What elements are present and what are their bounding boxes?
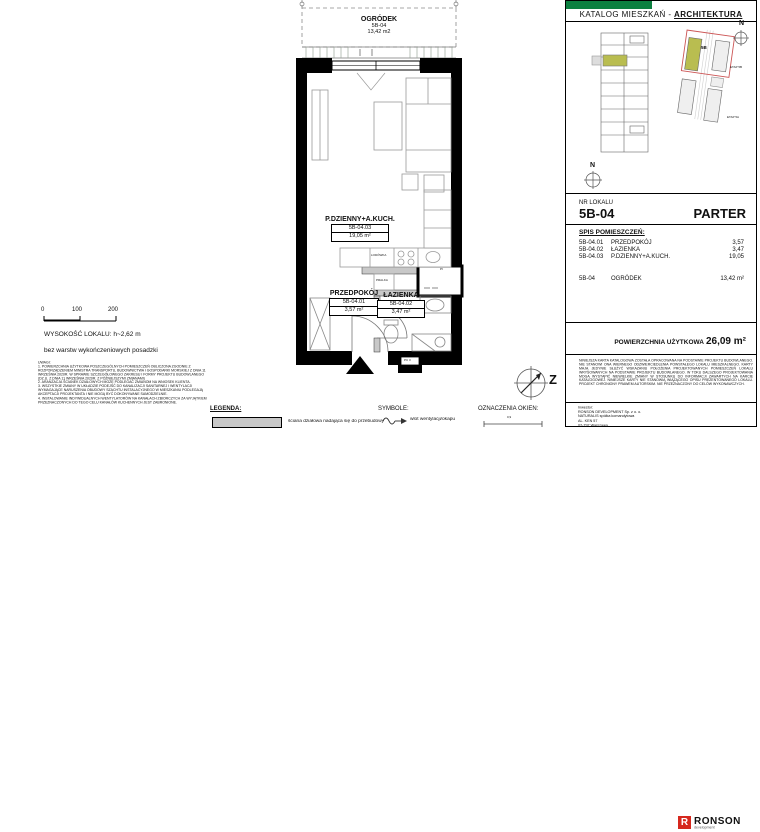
- shaft-label: PI: [440, 268, 443, 271]
- room-row-1: 5B-04.01 PRZEDPOKÓJ 3,57: [579, 240, 744, 246]
- garden-row-area: 13,42 m²: [720, 276, 744, 282]
- window-mark-symbol: [484, 421, 542, 427]
- info-panel: KATALOG MIESZKAŃ - ARCHITEKTURA N N 5B E…: [565, 0, 757, 427]
- balcony-window: [332, 61, 420, 70]
- room-name: ŁAZIENKA: [611, 247, 732, 253]
- living-furniture: [312, 78, 451, 192]
- living-room-code: 5B-04.03: [332, 225, 388, 233]
- unit-number: 5B-04: [579, 206, 614, 221]
- site-plan-section: N N 5B ETAP 5B ETAP 5A: [566, 22, 756, 194]
- investor-block: Inwestor: RONSON DEVELOPMENT Sp. z o. o.…: [578, 406, 677, 428]
- usable-area-label: POWIERZCHNIA UŻYTKOWA: [614, 339, 704, 346]
- vent-label: wlot wentylacji/okapu: [410, 417, 455, 422]
- floor-finish-note: bez warstw wykończeniowych posadzki: [44, 347, 158, 354]
- bathroom-code: 5B-04.02: [378, 301, 424, 309]
- scale-tick-0: 0: [41, 307, 44, 313]
- catalog-title: KATALOG MIESZKAŃ - ARCHITEKTURA: [566, 10, 756, 19]
- fridge-label: LODÓWKA: [371, 254, 386, 257]
- ronson-logo: R RONSON development: [678, 816, 741, 832]
- uwagi-item-1: 1. POWIERZCHNIA UŻYTKOWA POSZCZEGÓLNYCH …: [38, 365, 207, 381]
- uwagi-item-4: 4. INSTALOWANIE INDYWIDUALNYCH WENTYLATO…: [38, 397, 207, 405]
- investor-section: Inwestor: RONSON DEVELOPMENT Sp. z o. o.…: [566, 403, 756, 427]
- room-code: 5B-04.01: [579, 240, 611, 246]
- compass-west-icon: [514, 366, 548, 400]
- garden-label: OGRÓDEK 5B-04 13,42 m2: [320, 16, 438, 35]
- room-area: 3,47: [732, 247, 744, 253]
- living-room-label: P.DZIENNY+A.KUCH. 5B-04.03 19,05 m²: [305, 216, 415, 242]
- bathroom-name: ŁAZIENKA: [372, 292, 430, 299]
- compass-west-label: Z: [549, 372, 557, 387]
- uwagi-item-3: 3. WSZYSTKIE ZMIANY W UKŁADZIE PODEJŚĆ D…: [38, 385, 207, 397]
- catalog-title-prefix: KATALOG MIESZKAŃ -: [580, 10, 674, 19]
- room-name: P.DZIENNY+A.KUCH.: [611, 254, 729, 260]
- room-row-3: 5B-04.03 P.DZIENNY+A.KUCH. 19,05: [579, 254, 744, 260]
- hall-code: 5B-04.01: [330, 299, 378, 307]
- living-room-area: 19,05 m²: [332, 233, 388, 240]
- room-name: PRZEDPOKÓJ: [611, 240, 732, 246]
- site-unit-label: 5B: [701, 46, 707, 51]
- scale-tick-200: 200: [108, 307, 118, 313]
- scale-tick-100: 100: [72, 307, 82, 313]
- room-code: 5B-04.02: [579, 247, 611, 253]
- partition-wall-swatch: [212, 417, 282, 428]
- room-row-2: 5B-04.02 ŁAZIENKA 3,47: [579, 247, 744, 253]
- window-dim-label: 0,9: [507, 416, 511, 419]
- unit-floor: PARTER: [694, 206, 746, 221]
- stage-label-bottom: ETAP 5A: [727, 116, 739, 119]
- unit-number-section: NR LOKALU 5B-04 PARTER: [566, 194, 756, 225]
- floor-plan: [296, 0, 462, 374]
- ronson-logo-icon: R: [678, 816, 691, 829]
- bathroom-area: 3,47 m²: [378, 309, 424, 316]
- garden-name: OGRÓDEK: [320, 16, 438, 23]
- legend-title: LEGENDA:: [210, 406, 241, 412]
- room-list-section: SPIS POMIESZCZEŃ: 5B-04.01 PRZEDPOKÓJ 3,…: [566, 225, 756, 323]
- garden-area: 13,42 m2: [320, 29, 438, 35]
- usable-area-section: POWIERZCHNIA UŻYTKOWA 26,09 m²: [566, 323, 756, 355]
- room-area: 3,57: [732, 240, 744, 246]
- garden-row: 5B-04 OGRÓDEK 13,42 m²: [579, 276, 744, 282]
- usable-area-value: 26,09 m²: [706, 336, 746, 347]
- disclaimer-section: NINIEJSZA KARTA KATALOGOWA ZOSTAŁA OPRAC…: [566, 355, 756, 403]
- hall-area: 3,57 m²: [330, 307, 378, 314]
- garden-row-code: 5B-04: [579, 276, 611, 282]
- room-area: 19,05: [729, 254, 744, 260]
- room-code: 5B-04.03: [579, 254, 611, 260]
- compass-north-right-label: N: [739, 20, 744, 27]
- brand-green-bar: [566, 1, 652, 9]
- bathroom-label: ŁAZIENKA 5B-04.02 3,47 m²: [372, 292, 430, 318]
- catalog-title-emphasis: ARCHITEKTURA: [674, 10, 742, 19]
- vent-symbol: [383, 418, 407, 424]
- compass-north-left-label: N: [590, 162, 595, 169]
- disclaimer-text: NINIEJSZA KARTA KATALOGOWA ZOSTAŁA OPRAC…: [579, 359, 753, 387]
- height-note: WYSOKOŚĆ LOKALU: h~2,62 m: [44, 331, 141, 338]
- windows-title: OZNACZENIA OKIEN:: [478, 406, 538, 412]
- catalog-page: OGRÓDEK 5B-04 13,42 m2 P.DZIENNY+A.KUCH.…: [0, 0, 760, 428]
- stage-label-top: ETAP 5B: [730, 66, 742, 69]
- ronson-logo-subtext: development: [694, 826, 722, 830]
- partition-wall-label: ściana działowa nadająca się do przebudo…: [288, 419, 384, 424]
- window-swing-mark: [357, 73, 385, 90]
- door-code-label: PC 3: [404, 359, 411, 362]
- garden-row-name: OGRÓDEK: [611, 276, 720, 282]
- uwagi-block: UWAGI: 1. POWIERZCHNIA UŻYTKOWA POSZCZEG…: [38, 361, 207, 405]
- room-list-title: SPIS POMIESZCZEŃ:: [579, 229, 645, 236]
- fence-band: [302, 47, 456, 58]
- scale-bar: [44, 316, 116, 321]
- symbols-title: SYMBOLE:: [378, 406, 409, 412]
- living-room-name: P.DZIENNY+A.KUCH.: [305, 216, 415, 223]
- washer-label: PRALKA: [376, 279, 388, 282]
